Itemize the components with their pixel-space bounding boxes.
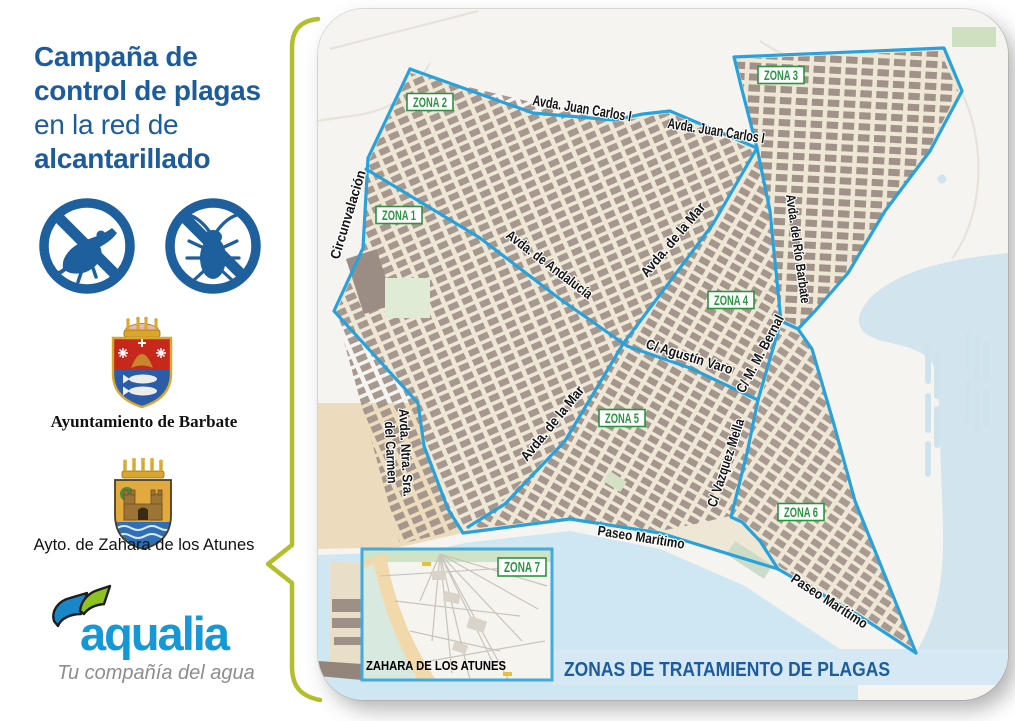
no-cockroaches-icon bbox=[163, 196, 263, 296]
svg-text:ZONA 7: ZONA 7 bbox=[504, 560, 540, 576]
svg-text:ZONA 5: ZONA 5 bbox=[605, 411, 639, 426]
svg-text:ZONA 3: ZONA 3 bbox=[764, 68, 798, 83]
zone-label-4: ZONA 4 bbox=[708, 292, 754, 309]
svg-text:ZONA 1: ZONA 1 bbox=[382, 208, 416, 223]
aqualia-wordmark: aqualia bbox=[80, 610, 228, 657]
svg-text:ZONA 2: ZONA 2 bbox=[413, 95, 447, 110]
pest-control-poster: { "campaign": { "title_lines": ["Campaña… bbox=[0, 0, 1015, 721]
inset-caption: ZAHARA DE LOS ATUNES bbox=[366, 658, 506, 673]
crown bbox=[124, 317, 160, 337]
zone-label-5: ZONA 5 bbox=[599, 410, 645, 427]
zone-label-1: ZONA 1 bbox=[376, 207, 422, 224]
zone-label-7: ZONA 7 bbox=[498, 558, 546, 576]
svg-text:ZONA 6: ZONA 6 bbox=[784, 505, 818, 520]
street-label-carmen-line2: del Carmen bbox=[382, 421, 401, 484]
crown bbox=[122, 458, 164, 478]
zone-label-3: ZONA 3 bbox=[758, 67, 804, 84]
map-panel: ZAHARA DE LOS ATUNES Avda. Juan Carlos I… bbox=[318, 9, 1008, 700]
zahara-caption: Ayto. de Zahara de los Atunes bbox=[10, 536, 278, 555]
no-rats-icon bbox=[37, 196, 137, 296]
zone-label-6: ZONA 6 bbox=[778, 504, 824, 521]
aqualia-tagline: Tu compañía del agua bbox=[36, 662, 276, 685]
footer-banner-label: ZONAS DE TRATAMIENTO DE PLAGAS bbox=[564, 659, 890, 681]
map-svg: ZAHARA DE LOS ATUNES Avda. Juan Carlos I… bbox=[318, 9, 1008, 700]
zone-label-2: ZONA 2 bbox=[407, 94, 453, 111]
barbate-caption: Ayuntamiento de Barbate bbox=[10, 412, 278, 432]
svg-text:ZONA 4: ZONA 4 bbox=[714, 293, 748, 308]
barbate-crest bbox=[98, 316, 186, 410]
